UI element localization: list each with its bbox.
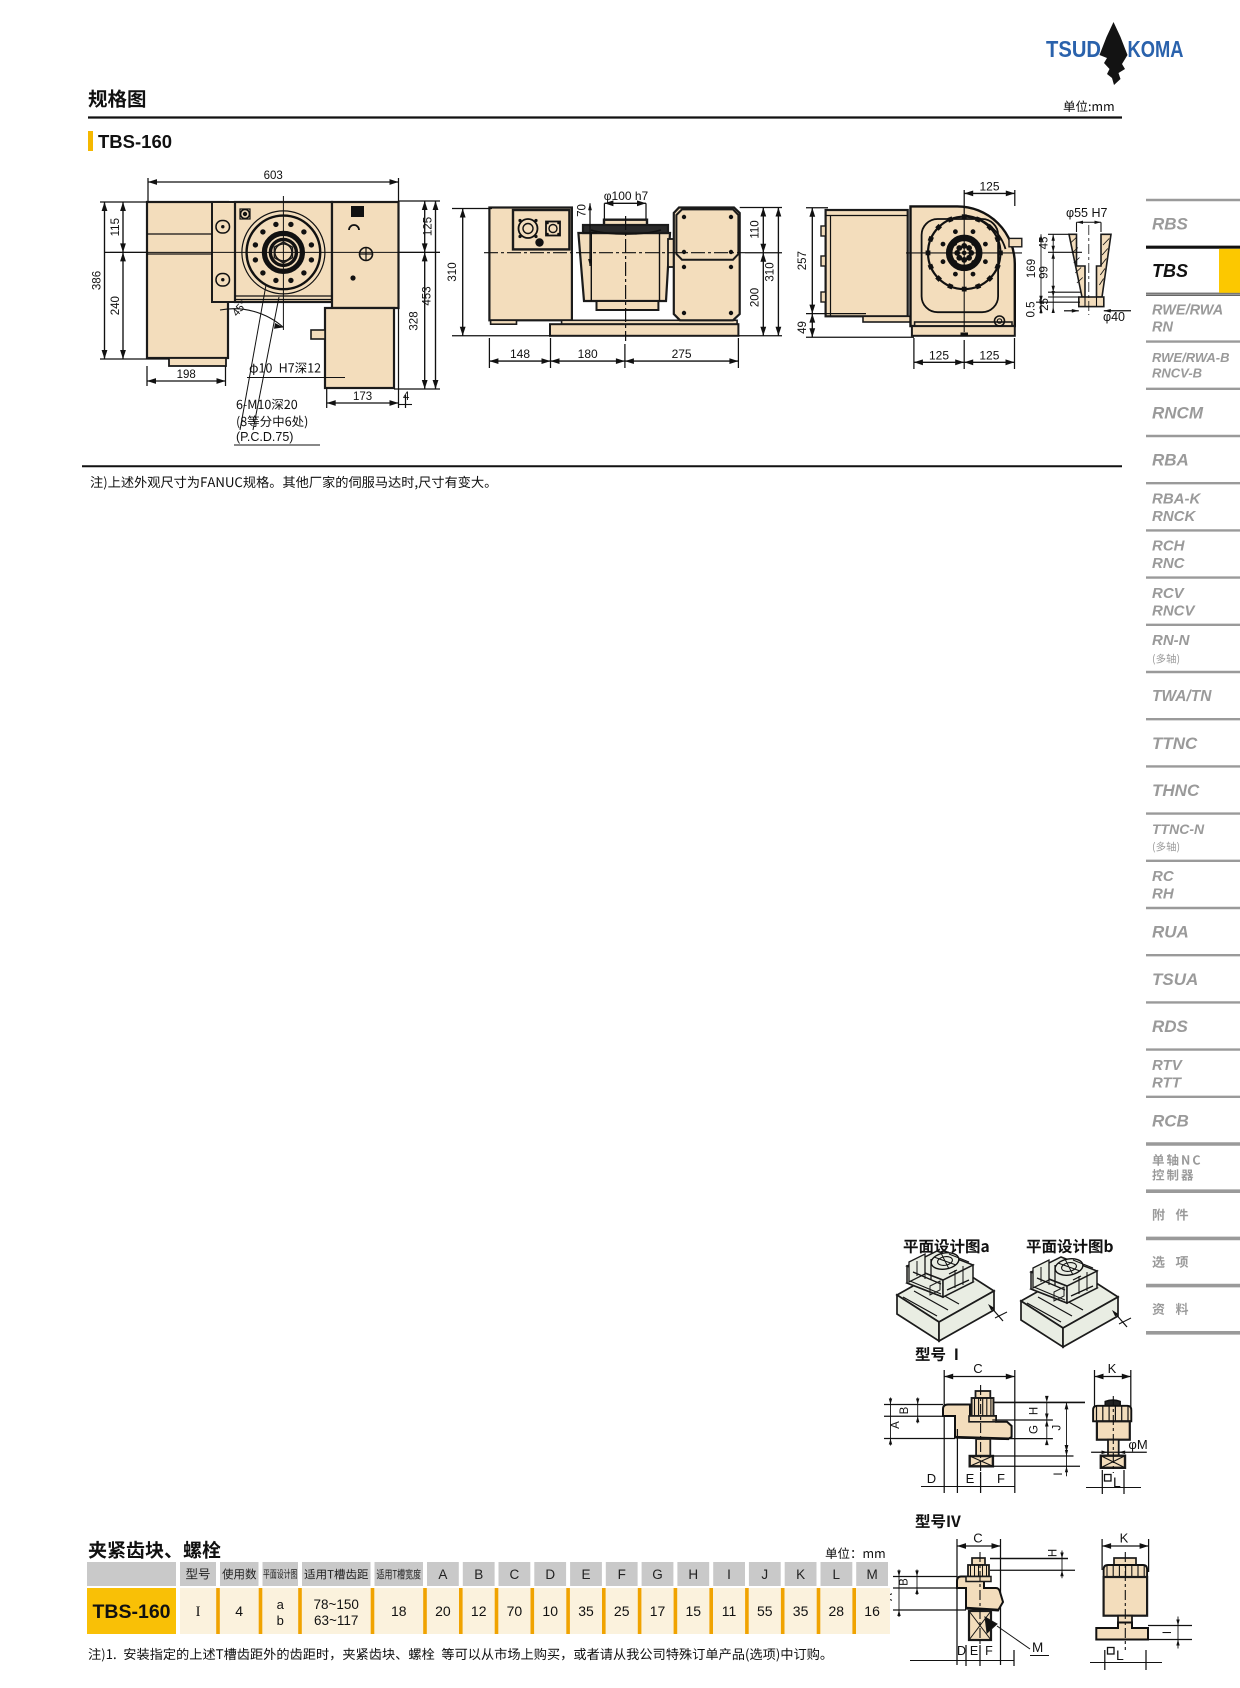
svg-text:TSUD: TSUD [1046, 36, 1101, 62]
svg-text:TBS: TBS [1152, 261, 1188, 281]
svg-text:A: A [438, 1567, 447, 1582]
svg-text:63~117: 63~117 [314, 1613, 358, 1628]
svg-text:RWE/RWA-B: RWE/RWA-B [1152, 350, 1230, 365]
svg-text:C: C [510, 1567, 520, 1582]
svg-text:I: I [196, 1604, 201, 1620]
svg-text:173: 173 [353, 391, 372, 403]
svg-text:240: 240 [110, 296, 122, 315]
svg-text:B: B [474, 1567, 483, 1582]
svg-text:70: 70 [577, 204, 589, 217]
svg-text:17: 17 [650, 1603, 666, 1619]
svg-text:110: 110 [750, 220, 762, 238]
svg-text:φM: φM [1128, 1437, 1147, 1452]
svg-text:RBS: RBS [1152, 215, 1189, 234]
svg-text:257: 257 [797, 251, 809, 270]
svg-text:I: I [1053, 1472, 1065, 1475]
svg-text:E: E [970, 1644, 978, 1658]
svg-text:RN: RN [1152, 320, 1173, 336]
svg-text:G: G [1029, 1425, 1041, 1434]
svg-text:TBS-160: TBS-160 [92, 1601, 170, 1623]
svg-text:RCV: RCV [1152, 585, 1186, 602]
svg-text:B: B [899, 1578, 911, 1586]
svg-text:28: 28 [829, 1603, 845, 1619]
svg-text:φ40: φ40 [1103, 310, 1125, 324]
svg-text:4: 4 [403, 391, 410, 403]
svg-text:20: 20 [435, 1603, 451, 1619]
svg-text:RTT: RTT [1152, 1074, 1183, 1091]
svg-text:11: 11 [722, 1603, 737, 1619]
svg-text:RNCV: RNCV [1152, 602, 1196, 619]
svg-text:55: 55 [757, 1603, 773, 1619]
svg-text:125: 125 [929, 348, 949, 362]
svg-text:L: L [1116, 1647, 1124, 1663]
svg-text:D: D [957, 1644, 966, 1658]
svg-text:F: F [618, 1567, 626, 1582]
svg-text:A: A [890, 1421, 902, 1429]
svg-text:RC: RC [1152, 868, 1175, 885]
svg-text:RDS: RDS [1152, 1017, 1189, 1036]
svg-text:200: 200 [750, 288, 762, 307]
svg-text:125: 125 [423, 217, 435, 236]
svg-text:125: 125 [979, 179, 999, 193]
svg-text:C: C [973, 1531, 982, 1546]
svg-text:49: 49 [797, 321, 809, 334]
svg-text:E: E [581, 1567, 590, 1582]
svg-text:a: a [277, 1597, 285, 1612]
svg-text:TTNC: TTNC [1152, 734, 1198, 753]
svg-text:386: 386 [92, 271, 104, 290]
svg-text:TSUA: TSUA [1152, 970, 1198, 989]
svg-text:RTV: RTV [1152, 1057, 1184, 1074]
svg-text:H: H [1048, 1549, 1060, 1557]
svg-text:RBA-K: RBA-K [1152, 491, 1201, 508]
svg-text:198: 198 [177, 369, 196, 381]
svg-text:RNC: RNC [1152, 555, 1186, 572]
svg-text:78~150: 78~150 [313, 1597, 358, 1612]
svg-text:F: F [997, 1471, 1005, 1486]
svg-text:TTNC-N: TTNC-N [1152, 821, 1205, 837]
svg-text:RH: RH [1152, 886, 1175, 903]
svg-text:K: K [1120, 1531, 1129, 1546]
svg-text:b: b [277, 1613, 284, 1628]
svg-text:275: 275 [672, 347, 692, 361]
svg-text:RNCK: RNCK [1152, 508, 1196, 525]
svg-text:B: B [899, 1406, 911, 1414]
svg-text:J: J [1052, 1425, 1064, 1431]
svg-text:10: 10 [542, 1603, 558, 1619]
svg-text:16: 16 [864, 1603, 880, 1619]
svg-text:RCB: RCB [1152, 1112, 1189, 1131]
svg-text:603: 603 [264, 170, 283, 182]
svg-text:RUA: RUA [1152, 923, 1189, 942]
svg-text:RN-N: RN-N [1152, 632, 1191, 649]
svg-text:φ55 H7: φ55 H7 [1066, 206, 1108, 220]
svg-text:C: C [973, 1361, 982, 1376]
svg-text:M: M [866, 1567, 877, 1582]
svg-text:310: 310 [765, 262, 777, 281]
svg-text:K: K [1108, 1361, 1117, 1376]
svg-text:D: D [545, 1567, 555, 1582]
svg-text:35: 35 [793, 1603, 809, 1619]
svg-text:K: K [796, 1567, 805, 1582]
svg-text:TBS-160: TBS-160 [98, 131, 172, 152]
svg-text:115: 115 [110, 218, 122, 236]
svg-text:KOMA: KOMA [1128, 36, 1184, 62]
svg-text:(P.C.D.75): (P.C.D.75) [236, 430, 293, 444]
svg-text:G: G [652, 1567, 663, 1582]
svg-text:25: 25 [1039, 298, 1051, 311]
svg-text:RNCM: RNCM [1152, 404, 1204, 423]
svg-text:125: 125 [979, 348, 999, 362]
svg-text:F: F [985, 1644, 993, 1658]
svg-text:99: 99 [1039, 266, 1051, 279]
svg-text:E: E [966, 1471, 975, 1486]
svg-text:D: D [927, 1471, 936, 1486]
svg-text:J: J [761, 1567, 768, 1582]
svg-text:I: I [1162, 1631, 1174, 1634]
svg-text:THNC: THNC [1152, 781, 1200, 800]
svg-text:0.5: 0.5 [1026, 302, 1038, 318]
svg-text:25: 25 [614, 1603, 630, 1619]
svg-text:70: 70 [507, 1603, 523, 1619]
svg-text:L: L [833, 1567, 841, 1582]
svg-text:4: 4 [235, 1603, 243, 1619]
svg-text:RCH: RCH [1152, 538, 1186, 555]
svg-text:RBA: RBA [1152, 451, 1189, 470]
svg-text:453: 453 [422, 286, 434, 305]
svg-text:I: I [727, 1567, 731, 1582]
svg-text:φ100 h7: φ100 h7 [604, 189, 649, 203]
svg-text:310: 310 [447, 262, 459, 281]
svg-text:M: M [1032, 1640, 1043, 1655]
svg-text:35: 35 [578, 1603, 594, 1619]
svg-text:148: 148 [510, 347, 530, 361]
svg-text:TWA/TN: TWA/TN [1152, 688, 1212, 705]
svg-text:180: 180 [578, 347, 598, 361]
svg-text:H: H [1029, 1407, 1041, 1415]
svg-text:RWE/RWA: RWE/RWA [1152, 303, 1223, 319]
svg-text:15: 15 [686, 1603, 702, 1619]
svg-text:169: 169 [1026, 259, 1038, 278]
svg-text:18: 18 [391, 1603, 407, 1619]
svg-text:12: 12 [471, 1603, 487, 1619]
svg-text:328: 328 [409, 311, 421, 330]
svg-text:RNCV-B: RNCV-B [1152, 366, 1202, 381]
svg-text:H: H [688, 1567, 698, 1582]
